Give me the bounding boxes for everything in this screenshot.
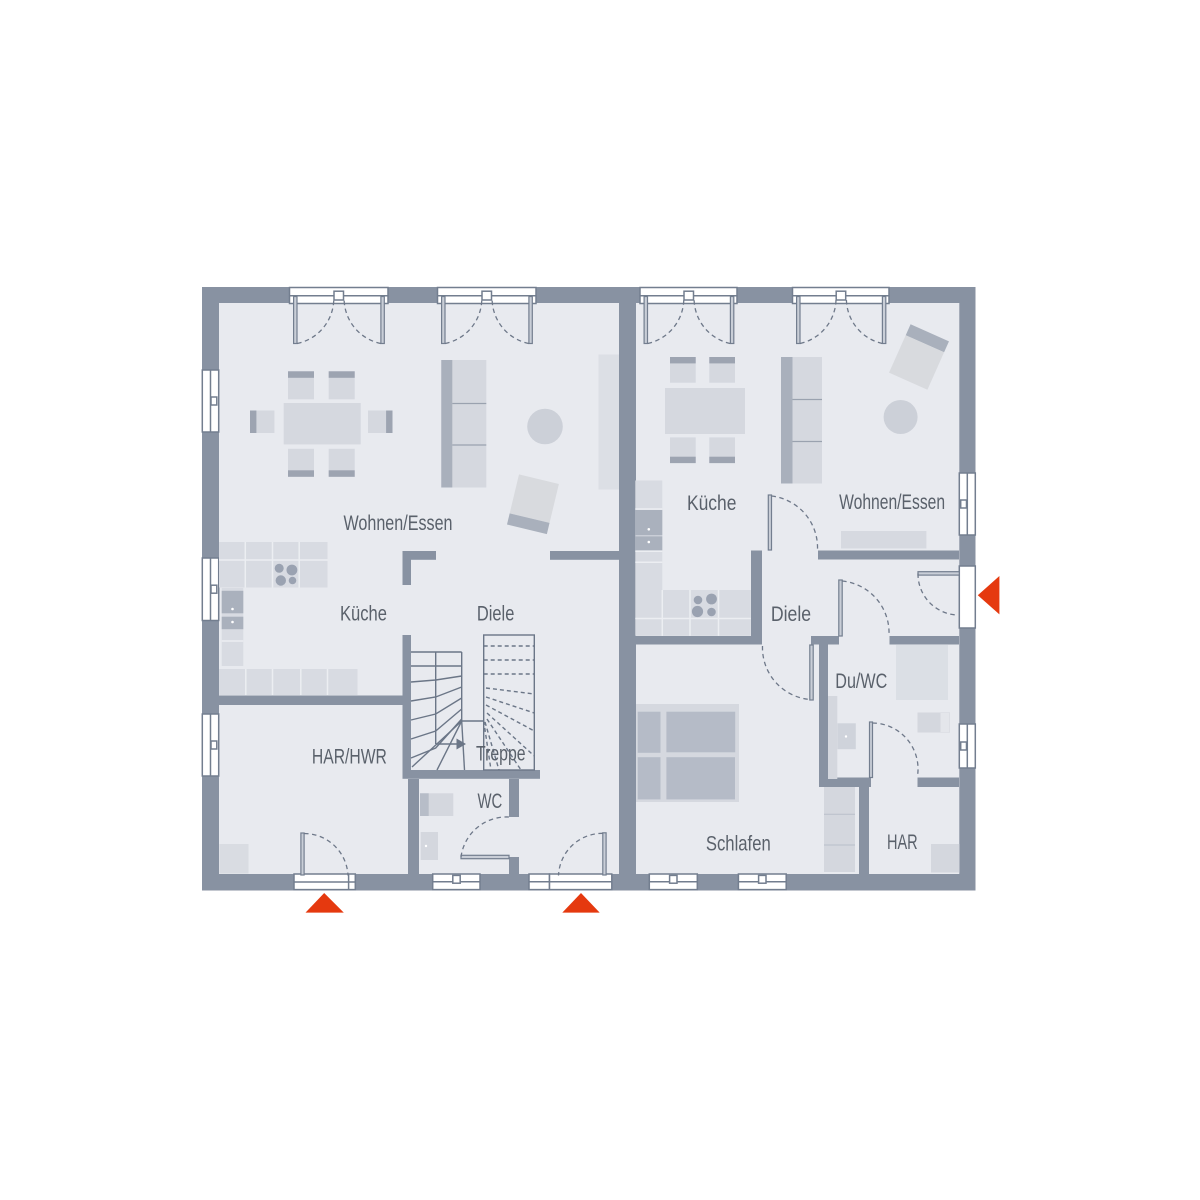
svg-text:Treppe: Treppe — [476, 743, 526, 766]
svg-text:WC: WC — [478, 790, 503, 813]
svg-text:Diele: Diele — [477, 602, 515, 625]
svg-text:Schlafen: Schlafen — [706, 833, 771, 856]
svg-text:Wohnen/Essen: Wohnen/Essen — [344, 512, 453, 535]
svg-text:Du/WC: Du/WC — [835, 670, 887, 693]
svg-text:Diele: Diele — [771, 603, 811, 626]
svg-text:HAR/HWR: HAR/HWR — [312, 746, 387, 769]
svg-text:Wohnen/Essen: Wohnen/Essen — [839, 491, 945, 514]
svg-text:HAR: HAR — [887, 831, 918, 854]
svg-text:Küche: Küche — [340, 602, 387, 625]
svg-text:Küche: Küche — [687, 492, 737, 515]
